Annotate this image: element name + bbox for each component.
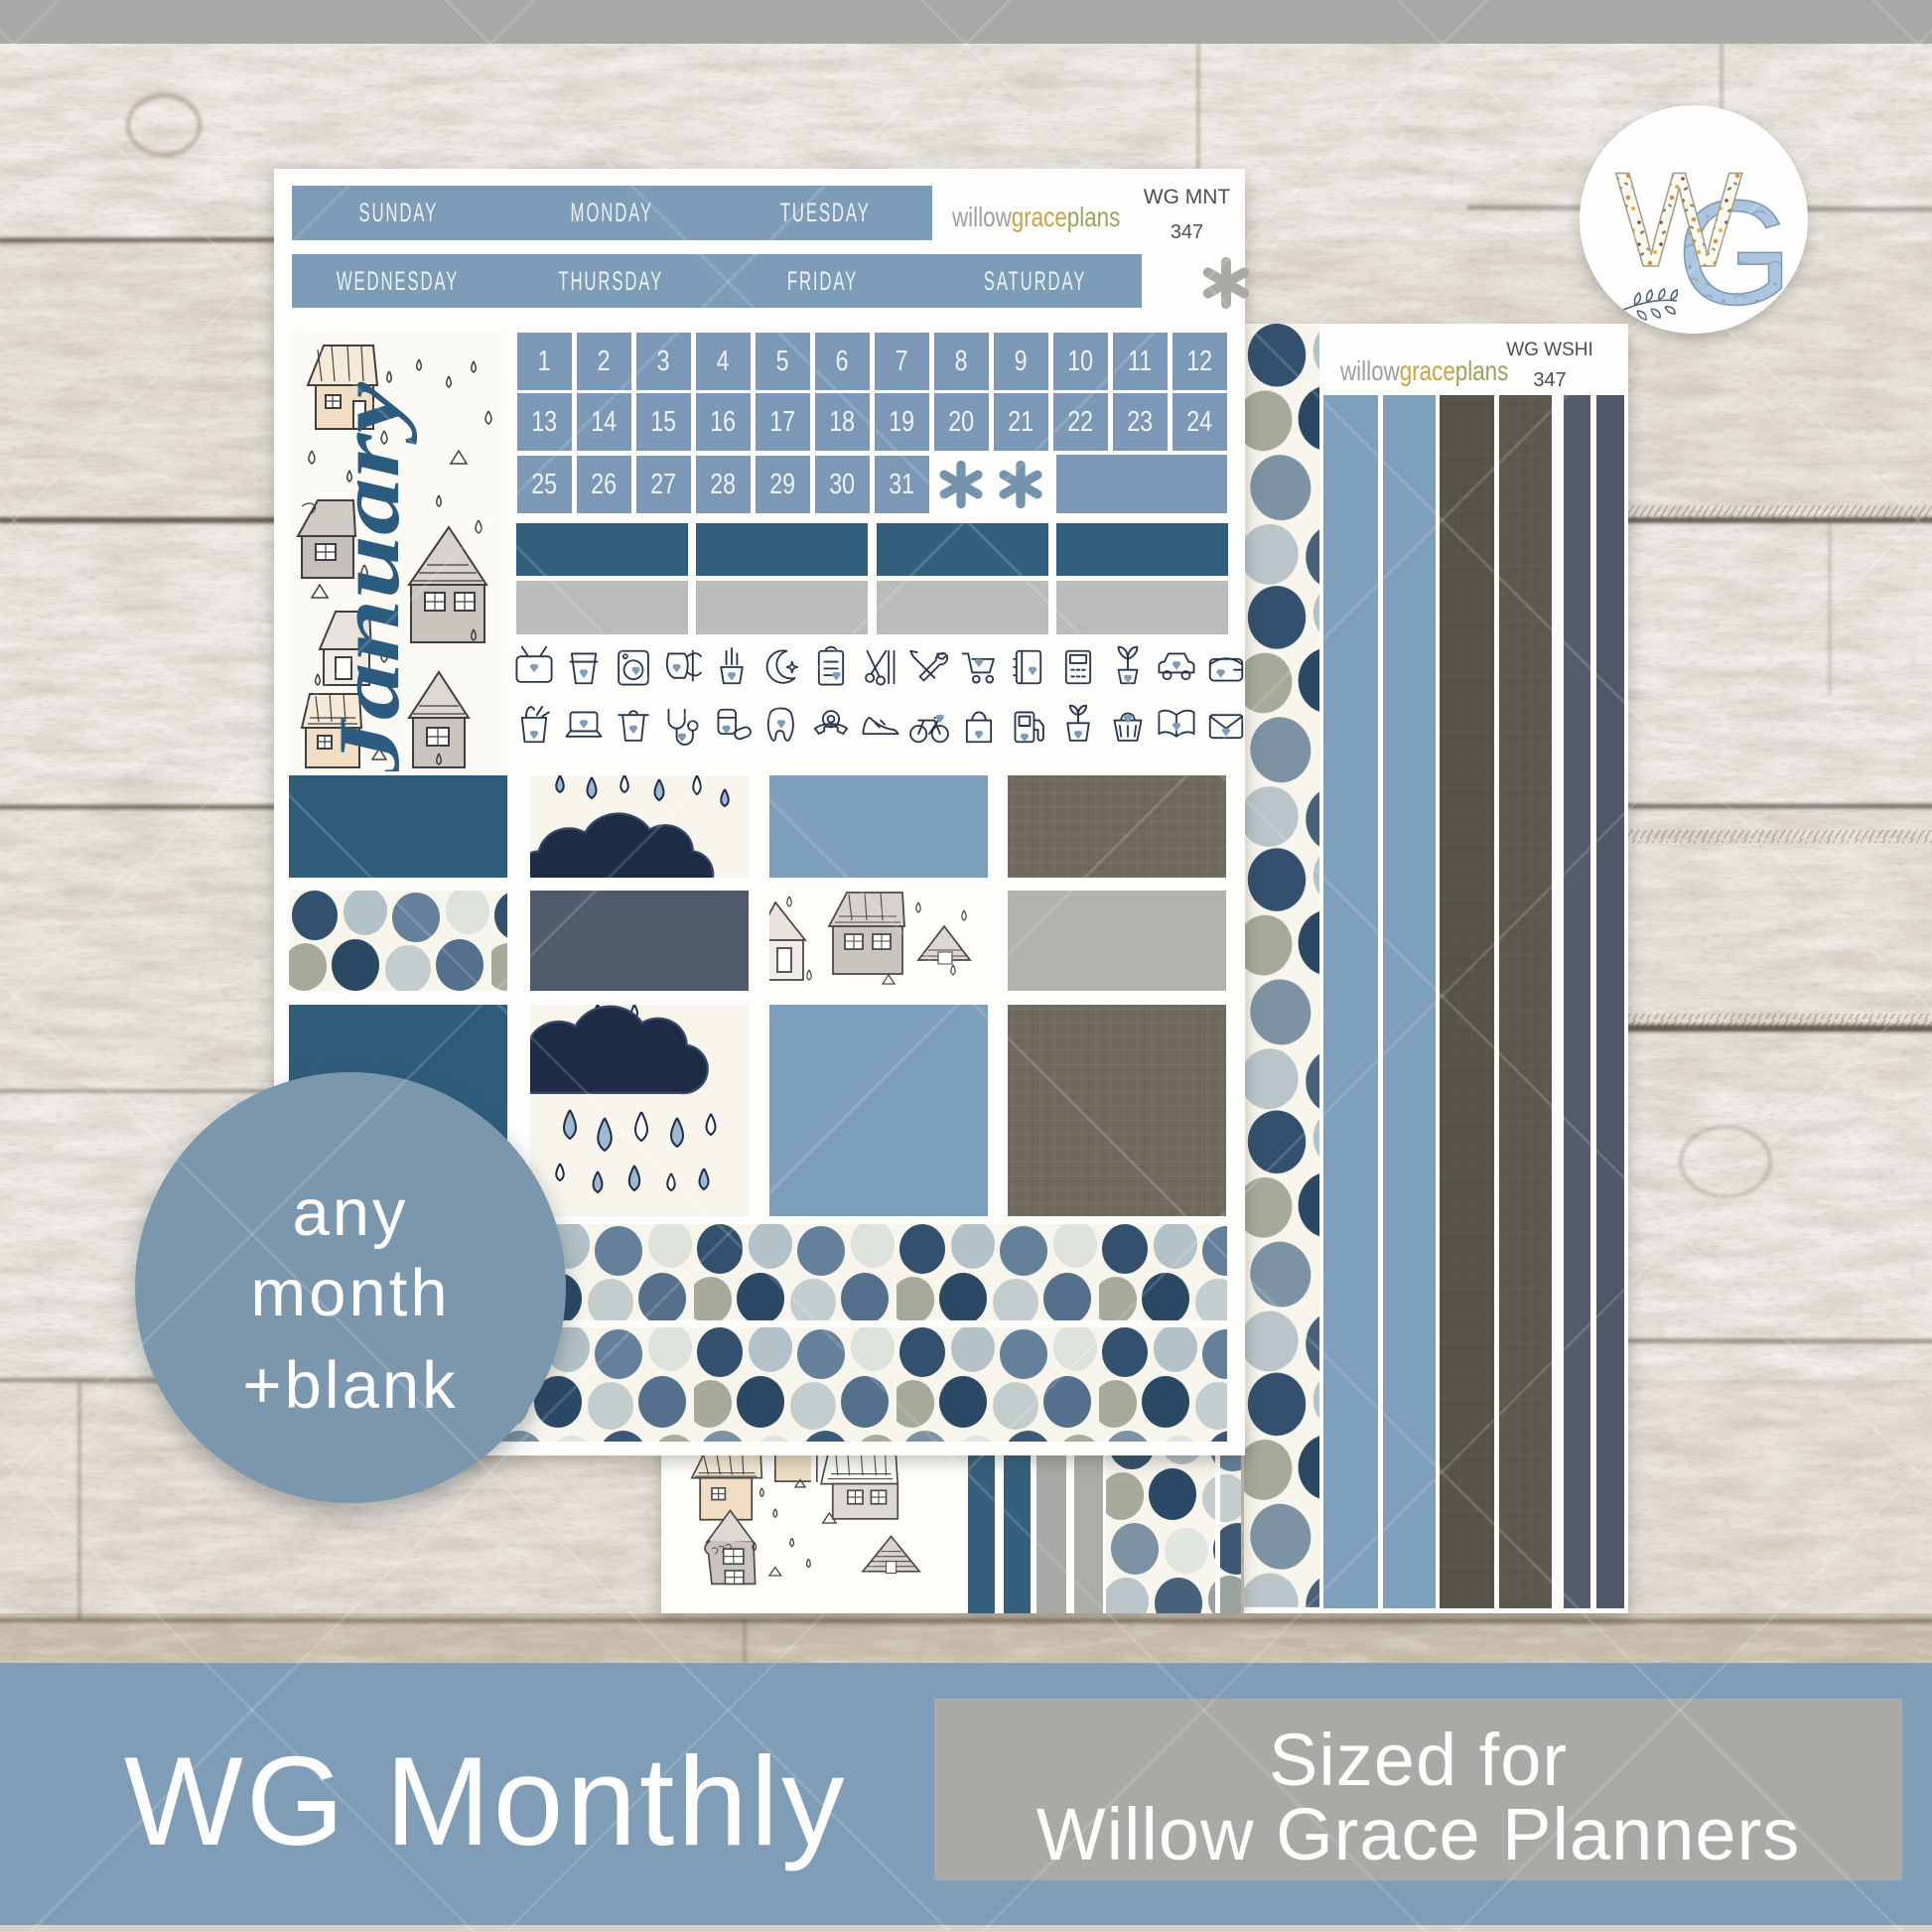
svg-text:W: W xyxy=(1615,144,1742,295)
svg-text:January: January xyxy=(322,381,418,771)
